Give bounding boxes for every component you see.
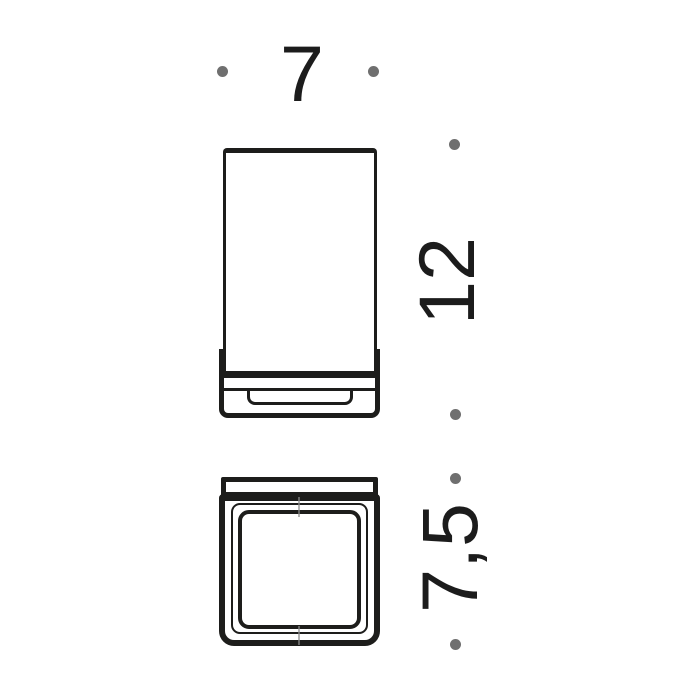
- depth-dimension-label: 7,5: [399, 463, 499, 653]
- center-mark-bottom: [298, 626, 300, 645]
- glass-outline: [223, 148, 377, 372]
- rim-inner-line: [238, 510, 361, 629]
- technical-drawing-canvas: 7 12 7,5: [0, 0, 700, 700]
- center-mark-top: [298, 497, 300, 517]
- bracket-shelf-line: [219, 371, 380, 378]
- bracket-slot-outline: [247, 389, 353, 405]
- dimension-dot: [450, 409, 461, 420]
- wall-bracket-outline: [219, 349, 380, 418]
- dimension-dot: [449, 139, 460, 150]
- dimension-dot: [217, 66, 228, 77]
- height-dimension-label: 12: [396, 201, 496, 361]
- width-dimension-label: 7: [242, 30, 362, 116]
- dimension-dot: [368, 66, 379, 77]
